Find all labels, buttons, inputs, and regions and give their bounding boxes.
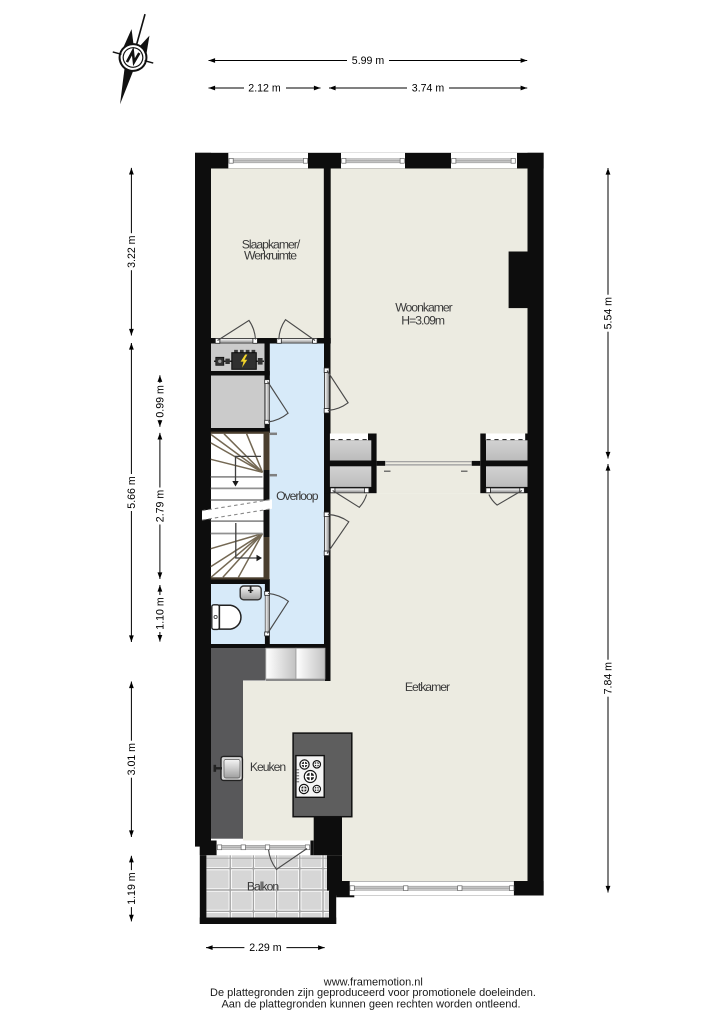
svg-text:Keuken: Keuken (250, 760, 286, 774)
svg-text:3.22 m: 3.22 m (126, 235, 138, 268)
svg-text:2.79 m: 2.79 m (155, 490, 167, 523)
svg-text:1.10 m: 1.10 m (155, 597, 167, 630)
svg-text:2.29 m: 2.29 m (249, 942, 282, 954)
svg-text:Aan de plattegronden kunnen ge: Aan de plattegronden kunnen geen rechten… (221, 998, 520, 1010)
svg-text:1.19 m: 1.19 m (126, 872, 138, 905)
svg-text:Eetkamer: Eetkamer (405, 680, 450, 694)
svg-text:5.99 m: 5.99 m (352, 55, 385, 67)
svg-text:7.84 m: 7.84 m (603, 662, 615, 695)
svg-text:5.66 m: 5.66 m (126, 476, 138, 509)
svg-text:H=3.09m: H=3.09m (401, 313, 445, 327)
svg-text:Woonkamer: Woonkamer (395, 300, 452, 314)
svg-text:Werkruimte: Werkruimte (244, 249, 297, 263)
svg-text:0.99 m: 0.99 m (155, 385, 167, 418)
svg-text:3.74 m: 3.74 m (412, 83, 445, 95)
svg-text:Balkon: Balkon (247, 879, 278, 893)
svg-text:Overloop: Overloop (276, 489, 319, 503)
svg-text:De plattegronden zijn geproduc: De plattegronden zijn geproduceerd voor … (210, 987, 536, 999)
svg-text:2.12 m: 2.12 m (248, 83, 281, 95)
svg-text:5.54 m: 5.54 m (603, 297, 615, 330)
svg-text:3.01 m: 3.01 m (126, 743, 138, 776)
